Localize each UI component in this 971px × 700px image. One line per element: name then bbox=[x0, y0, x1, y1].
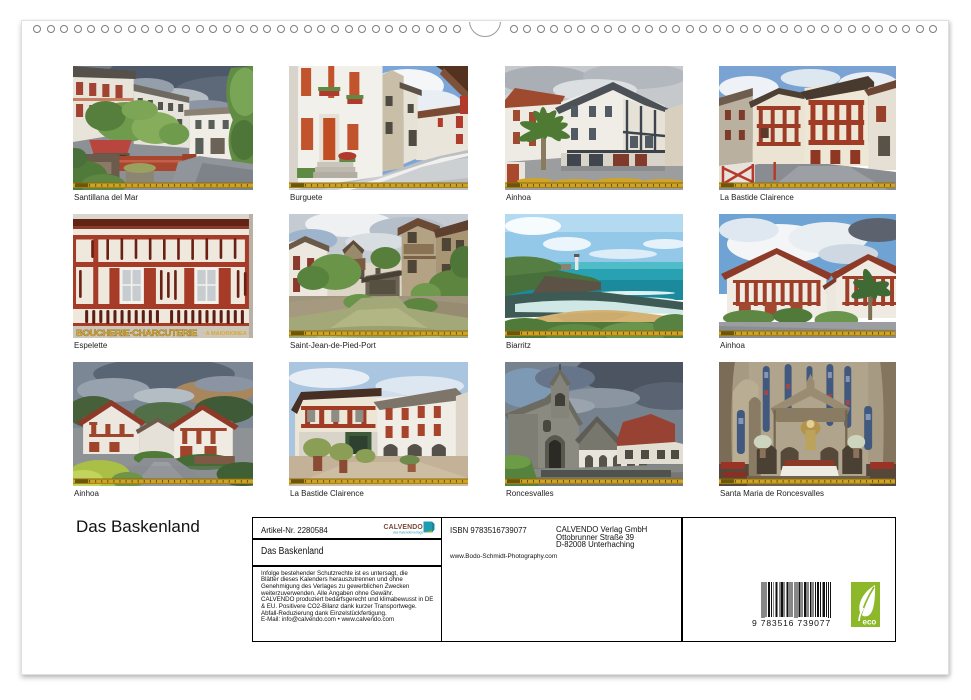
svg-text:· A MAIORKINEA ·: · A MAIORKINEA · bbox=[202, 331, 250, 337]
svg-text:des Kalenderverlags: des Kalenderverlags bbox=[393, 530, 423, 534]
svg-text:BOUCHERIE·CHARCUTERIE: BOUCHERIE·CHARCUTERIE bbox=[76, 328, 197, 338]
svg-text:eco: eco bbox=[863, 618, 877, 627]
